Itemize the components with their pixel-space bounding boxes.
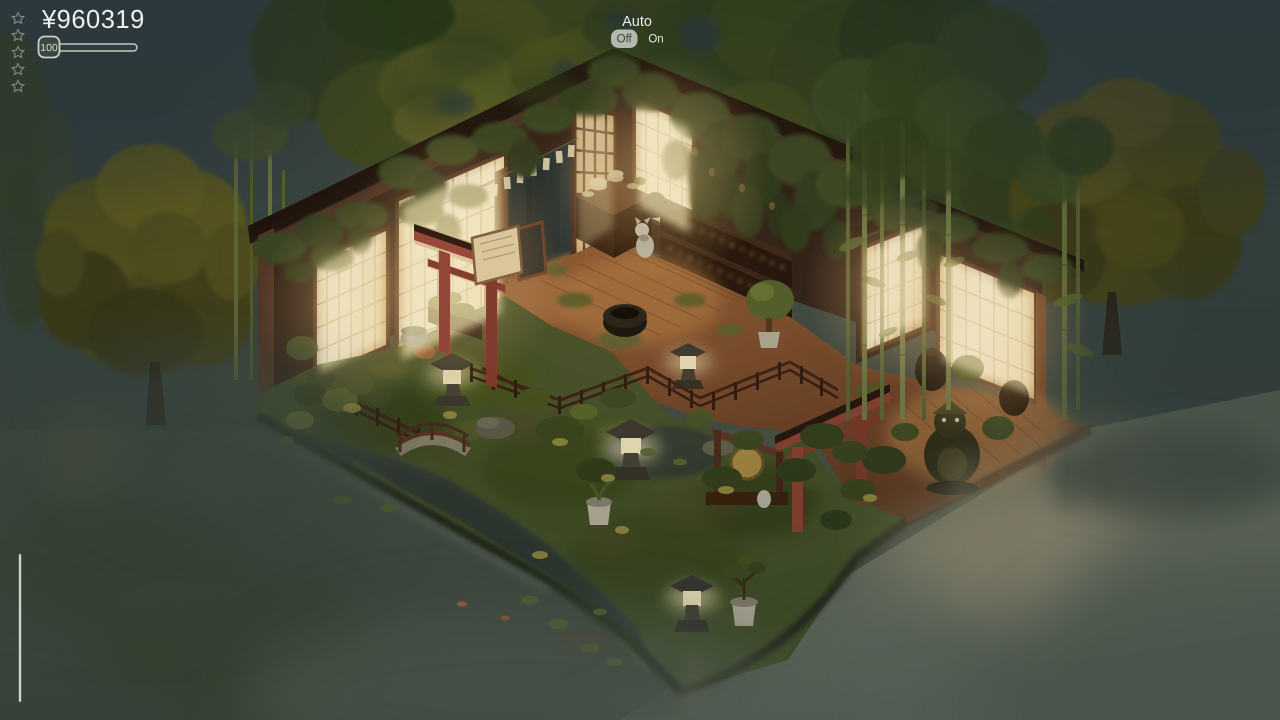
svg-text:Auto: Auto <box>622 14 652 30</box>
svg-text:¥960319: ¥960319 <box>41 6 145 34</box>
svg-text:100: 100 <box>40 42 58 54</box>
svg-text:On: On <box>648 34 663 46</box>
svg-text:Off: Off <box>617 34 633 46</box>
